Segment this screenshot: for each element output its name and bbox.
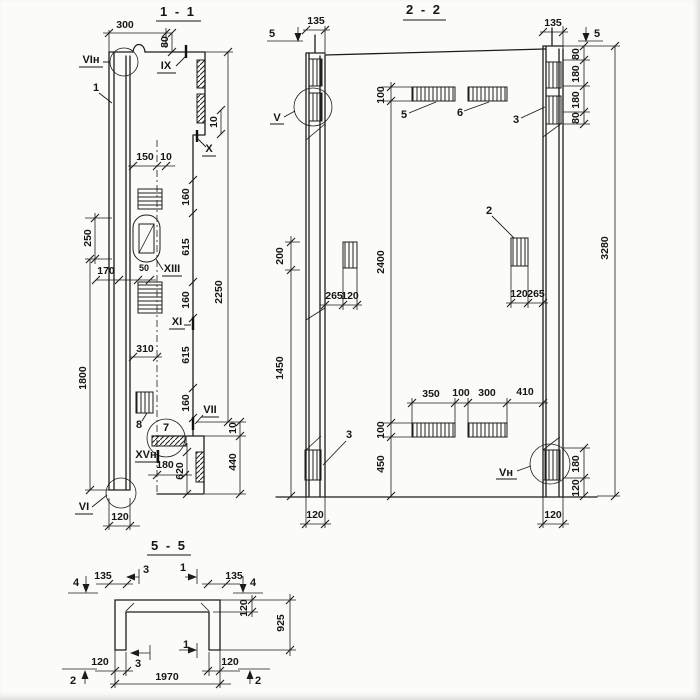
dim-10: 10 xyxy=(227,422,239,434)
item-label-2: 2 xyxy=(486,205,492,217)
embedded-bar-5 xyxy=(412,87,455,101)
dim-120: 120 xyxy=(341,290,359,302)
dim-620: 620 xyxy=(174,462,186,480)
dim-170: 170 xyxy=(97,265,115,277)
embedded-plate xyxy=(136,392,153,413)
leader-lines xyxy=(284,102,545,471)
mark-xiii: XIII xyxy=(164,263,181,275)
embedded-plate xyxy=(138,282,162,313)
dim-120: 120 xyxy=(91,656,109,668)
dim-2400: 2400 xyxy=(375,250,387,274)
item-label-6: 6 xyxy=(457,107,463,119)
item-label-3: 3 xyxy=(346,429,352,441)
dim-265: 265 xyxy=(527,288,545,300)
dim-160: 160 xyxy=(180,394,192,412)
embedded-plate xyxy=(309,93,322,121)
item-label-3: 3 xyxy=(513,114,519,126)
dim-180: 180 xyxy=(570,91,582,109)
dim-250: 250 xyxy=(82,229,94,247)
bar-mark-1-top: 1 xyxy=(180,562,186,574)
mark-x: X xyxy=(205,143,213,155)
embedded-plate xyxy=(546,62,561,88)
section-title: 1 - 1 xyxy=(160,4,196,19)
dim-50: 50 xyxy=(139,263,149,273)
section-1-1: 1 - 1 300 80 150 10 10 160 615 160 615 1… xyxy=(75,4,246,530)
dim-80: 80 xyxy=(159,36,171,48)
break-marks xyxy=(306,123,562,450)
dim-615: 615 xyxy=(180,238,192,256)
dim-300: 300 xyxy=(116,19,134,31)
mark-ix: IX xyxy=(161,60,172,72)
dim-180: 180 xyxy=(570,455,582,473)
lifting-loop xyxy=(133,45,145,53)
dim-120: 120 xyxy=(544,509,562,521)
edge-plate xyxy=(197,94,205,123)
embedded-plate xyxy=(546,96,561,124)
embedded-bar xyxy=(468,423,507,437)
item-label-8: 8 xyxy=(136,419,142,431)
dim-100: 100 xyxy=(375,421,387,439)
cut-mark-5-right: 5 xyxy=(594,28,600,40)
mark-xi: XI xyxy=(172,316,182,328)
cut-mark-2-right: 2 xyxy=(255,675,261,687)
item-label-5: 5 xyxy=(401,109,407,121)
dim-180: 180 xyxy=(156,459,174,471)
dim-410: 410 xyxy=(516,386,534,398)
edge-plate xyxy=(197,60,205,88)
dim-100: 100 xyxy=(375,86,387,104)
cut-mark-2-left: 2 xyxy=(70,675,76,687)
dim-135: 135 xyxy=(225,570,243,582)
bar-mark-3-bottom: 3 xyxy=(135,658,141,670)
section-2-2: 2 - 2 5 5 135 135 100 2400 100 450 200 1… xyxy=(267,2,620,528)
dim-3280: 3280 xyxy=(599,236,611,260)
channel-outline xyxy=(115,600,220,650)
dim-1800: 1800 xyxy=(77,366,89,390)
dim-135: 135 xyxy=(307,15,325,27)
dim-180: 180 xyxy=(570,65,582,83)
dim-10: 10 xyxy=(160,151,172,163)
dim-200: 200 xyxy=(274,247,286,265)
ledge-weld-strip xyxy=(152,436,186,446)
dimension-ticks xyxy=(105,580,294,688)
dimension-lines xyxy=(62,569,296,688)
dim-120: 120 xyxy=(111,511,129,523)
embedded-plate xyxy=(138,189,162,209)
dim-80: 80 xyxy=(570,112,582,124)
dim-1450: 1450 xyxy=(274,356,286,380)
cut-arrowheads xyxy=(295,33,590,42)
cut-mark-5-left: 5 xyxy=(269,28,275,40)
drawing-canvas: 1 - 1 300 80 150 10 10 160 615 160 615 1… xyxy=(0,0,700,700)
dim-135: 135 xyxy=(544,17,562,29)
dim-440: 440 xyxy=(227,453,239,471)
dim-120: 120 xyxy=(306,509,324,521)
dim-10: 10 xyxy=(208,116,220,128)
mark-vi: VI xyxy=(79,501,89,513)
dim-450: 450 xyxy=(375,455,387,473)
mark-vi-n: VIн xyxy=(82,54,99,66)
dim-310: 310 xyxy=(136,343,154,355)
cut-mark-4-right: 4 xyxy=(250,577,257,589)
section-title: 5 - 5 xyxy=(151,538,187,553)
dim-925: 925 xyxy=(275,614,287,632)
dim-120: 120 xyxy=(238,599,250,617)
ledge-edge-plate xyxy=(196,452,204,482)
dim-150: 150 xyxy=(136,151,154,163)
corner-chamfers xyxy=(126,603,209,611)
mark-v-n: Vн xyxy=(499,467,513,479)
drawing-sheet: 1 - 1 300 80 150 10 10 160 615 160 615 1… xyxy=(0,0,700,700)
embedded-plate xyxy=(543,450,560,480)
dim-120: 120 xyxy=(510,288,528,300)
dim-120: 120 xyxy=(570,479,582,497)
dim-120: 120 xyxy=(221,656,239,668)
dim-160: 160 xyxy=(180,188,192,206)
embedded-bar-6 xyxy=(468,87,507,101)
bar-mark-3-top: 3 xyxy=(143,564,149,576)
embedded-bar xyxy=(412,423,455,437)
dim-1970: 1970 xyxy=(155,671,179,683)
mark-xv-n: XVн xyxy=(135,449,156,461)
dimension-ticks xyxy=(86,29,244,530)
dim-160: 160 xyxy=(180,291,192,309)
dim-100: 100 xyxy=(452,387,470,399)
mark-v: V xyxy=(273,112,281,124)
dim-80: 80 xyxy=(570,48,582,60)
embedded-plate-2 xyxy=(343,242,357,268)
dim-300: 300 xyxy=(478,387,496,399)
embedded-plate-2 xyxy=(511,238,528,266)
section-title: 2 - 2 xyxy=(406,2,442,17)
dim-350: 350 xyxy=(422,388,440,400)
mark-vii: VII xyxy=(203,404,216,416)
dim-2250: 2250 xyxy=(213,280,225,304)
section-5-5: 5 - 5 135 135 120 925 120 120 1970 3 1 4… xyxy=(62,538,296,688)
embedded-plate xyxy=(305,450,321,480)
bar-mark-1-bottom: 1 xyxy=(183,639,189,651)
detail-circle-vi xyxy=(106,478,136,508)
detail-label-7: 7 xyxy=(163,422,169,434)
item-label-1: 1 xyxy=(93,82,99,94)
dim-615: 615 xyxy=(180,346,192,364)
cut-mark-4-left: 4 xyxy=(73,577,80,589)
embedded-plate xyxy=(309,59,322,86)
recess-diagonal xyxy=(139,224,154,253)
dim-135: 135 xyxy=(94,570,112,582)
